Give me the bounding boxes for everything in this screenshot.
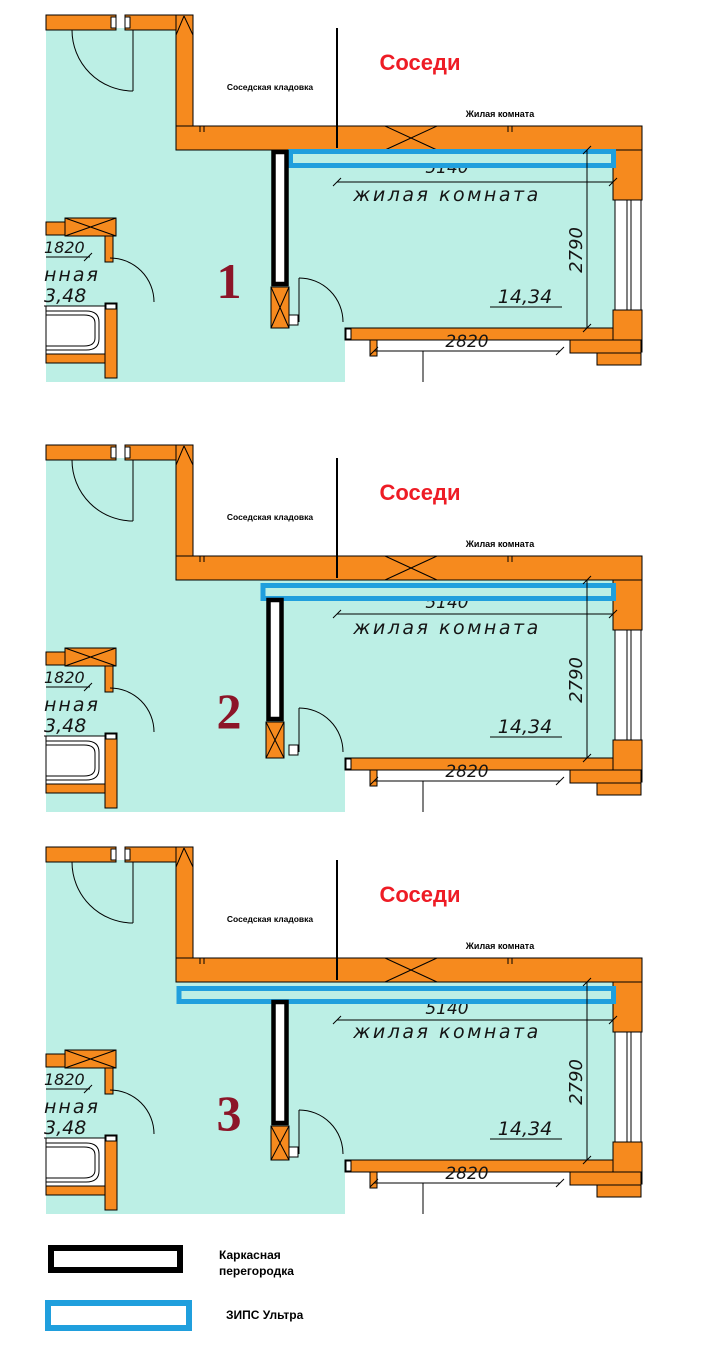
- zips-ultra-strip: [263, 586, 614, 599]
- zips-ultra-strip: [179, 989, 614, 1002]
- neighbor-room-label: Жилая комната: [465, 109, 535, 119]
- room-label: жилая комната: [352, 184, 540, 206]
- zips-ultra-swatch: [45, 1300, 192, 1331]
- room-label: жилая комната: [352, 617, 540, 639]
- floor-plan-variant-3: 5140 Соседи Соседская кладовка Жилая ком…: [0, 842, 701, 1219]
- neighbors-label: Соседи: [380, 50, 461, 75]
- variant-number: 2: [217, 683, 242, 739]
- dim-left-value: 1820: [44, 1070, 85, 1089]
- neighbors-label: Соседи: [380, 882, 461, 907]
- frame-partition-swatch: [48, 1245, 183, 1273]
- room-area-value: 14,34: [498, 1118, 552, 1140]
- bath-area-value: 3,48: [44, 715, 86, 737]
- dim-bottom-value: 2820: [445, 1164, 488, 1184]
- dim-right-value: 2790: [566, 1059, 587, 1105]
- frame-partition-label-line1: Каркасная: [219, 1248, 281, 1262]
- room-area-value: 14,34: [498, 716, 552, 738]
- bathroom: [46, 1138, 105, 1186]
- bathroom: [46, 736, 105, 784]
- neighbors-label: Соседи: [380, 480, 461, 505]
- floor-plan-svg-3: 5140 Соседи Соседская кладовка Жилая ком…: [0, 842, 701, 1214]
- dim-left-value: 1820: [44, 668, 85, 687]
- dim-left-value: 1820: [44, 238, 85, 257]
- frame-partition-label: Каркасная перегородка: [219, 1247, 294, 1279]
- window: [615, 630, 641, 740]
- bath-area-value: 3,48: [44, 285, 86, 307]
- zips-ultra-label: ЗИПС Ультра: [226, 1307, 303, 1323]
- floor-plan-svg-2: 5140 Соседи Соседская кладовка Жилая ком…: [0, 440, 701, 812]
- floor-plan-variant-1: 5140 Соседи Соседская кладовка Жилая ком…: [0, 10, 701, 387]
- neighbor-room-label: Жилая комната: [465, 539, 535, 549]
- variant-number: 3: [217, 1085, 242, 1141]
- storage-label: Соседская кладовка: [227, 82, 314, 92]
- dim-bottom-value: 2820: [445, 762, 488, 782]
- frame-partition-label-line2: перегородка: [219, 1264, 294, 1278]
- window: [615, 1032, 641, 1142]
- neighbor-room-label: Жилая комната: [465, 941, 535, 951]
- variant-number: 1: [217, 253, 242, 309]
- bath-label: нная: [44, 264, 100, 286]
- zips-ultra-strip: [291, 152, 614, 166]
- room-label: жилая комната: [352, 1021, 540, 1043]
- dim-right-value: 2790: [566, 657, 587, 703]
- storage-label: Соседская кладовка: [227, 512, 314, 522]
- room-area-value: 14,34: [498, 286, 552, 308]
- bath-area-value: 3,48: [44, 1117, 86, 1139]
- frame-partition: [274, 152, 287, 284]
- bathroom: [46, 306, 105, 354]
- dim-right-value: 2790: [566, 227, 587, 273]
- bath-label: нная: [44, 694, 100, 716]
- dim-bottom-value: 2820: [445, 332, 488, 352]
- floor-plan-variant-2: 5140 Соседи Соседская кладовка Жилая ком…: [0, 440, 701, 817]
- storage-label: Соседская кладовка: [227, 914, 314, 924]
- bath-label: нная: [44, 1096, 100, 1118]
- floor-plan-svg-1: 5140 Соседи Соседская кладовка Жилая ком…: [0, 10, 701, 382]
- frame-partition: [269, 600, 282, 719]
- frame-partition: [274, 1002, 287, 1123]
- window: [615, 200, 641, 310]
